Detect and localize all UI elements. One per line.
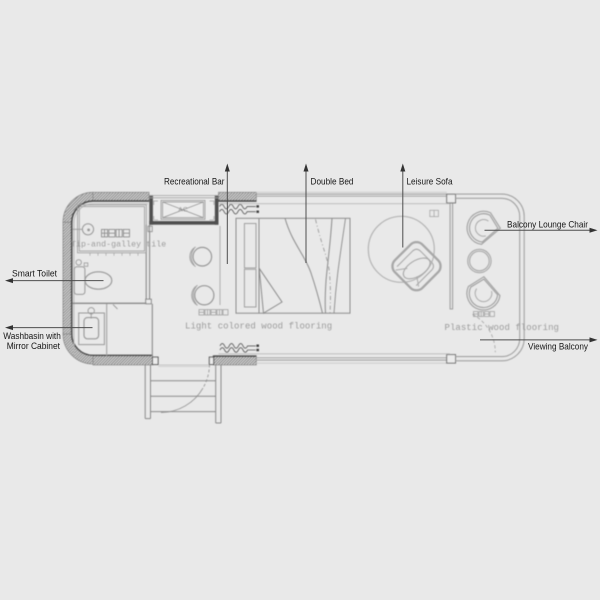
svg-text:Light colored wood flooring: Light colored wood flooring — [185, 321, 332, 331]
svg-text:Tip-and-galley tile: Tip-and-galley tile — [71, 240, 166, 250]
svg-text:Balcony Lounge Chair: Balcony Lounge Chair — [507, 219, 588, 230]
svg-text:AC: AC — [178, 207, 188, 214]
svg-text:Smart Toilet: Smart Toilet — [12, 268, 57, 279]
svg-text:Plastic wood flooring: Plastic wood flooring — [445, 323, 559, 333]
svg-text:Leisure Sofa: Leisure Sofa — [407, 176, 454, 187]
svg-text:Mirror Cabinet: Mirror Cabinet — [7, 341, 61, 352]
svg-text:Recreational Bar: Recreational Bar — [164, 176, 225, 187]
svg-text:Viewing Balcony: Viewing Balcony — [528, 342, 588, 353]
svg-text:Double Bed: Double Bed — [311, 176, 354, 187]
